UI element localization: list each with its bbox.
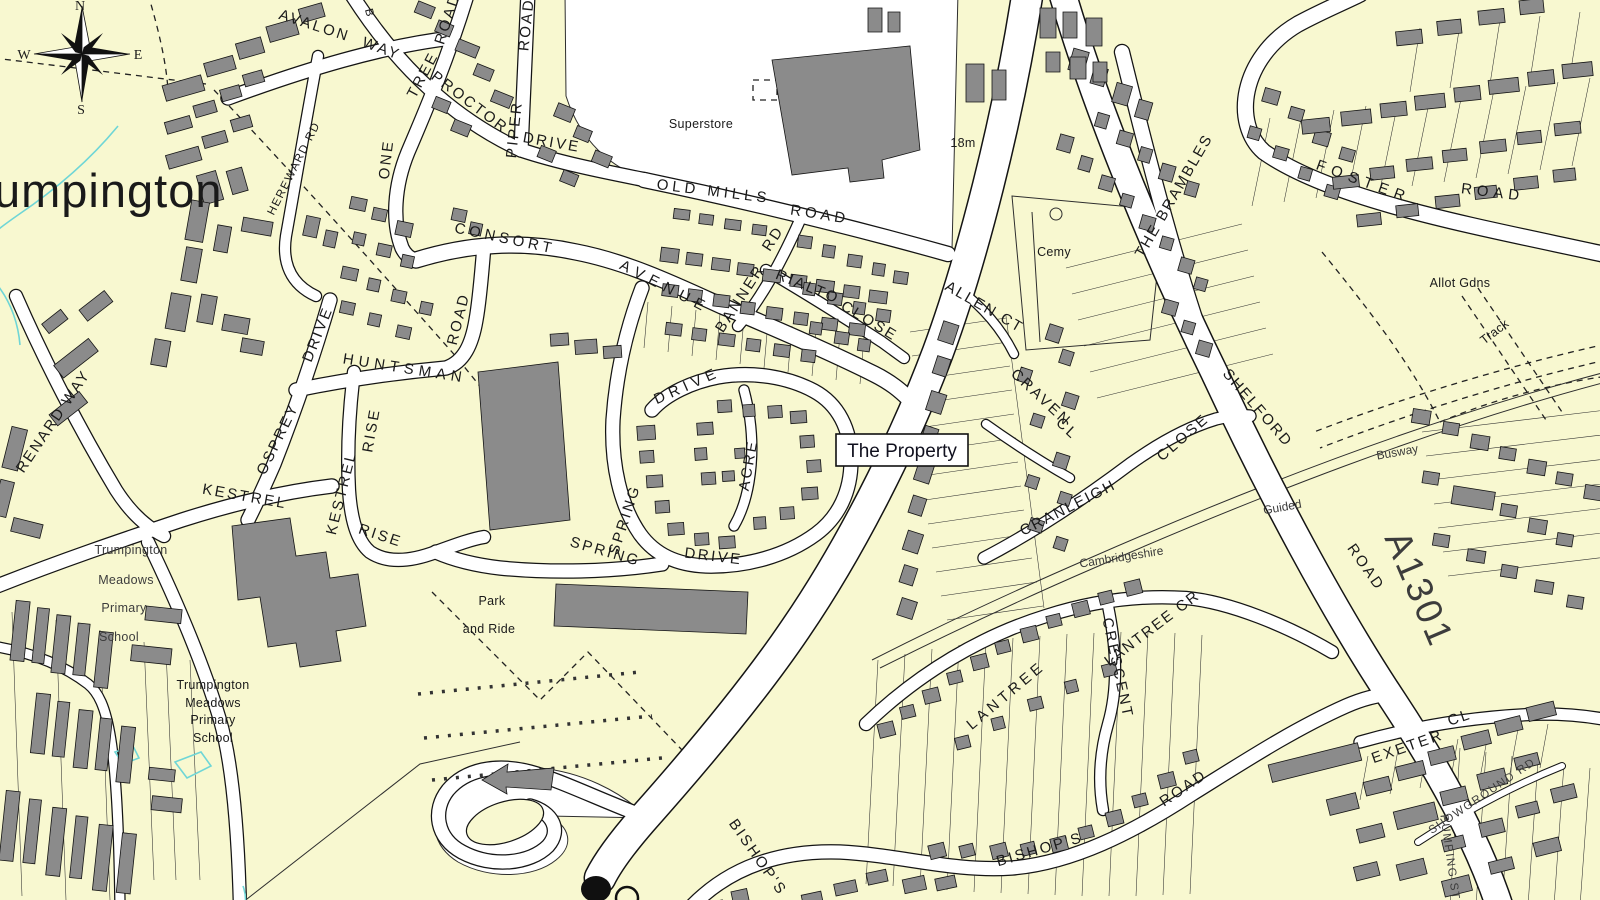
label-park: Park [479,594,506,608]
property-label: The Property [847,441,957,462]
map-canvas: umpington AVALON WAY B ROAD TREE ONE PRO… [0,0,1600,900]
school-label-faint-4: School [99,630,139,644]
compass-n: N [75,0,85,14]
school-label-4: School [193,731,233,745]
school-label-1: Trumpington [176,678,249,692]
compass-w: W [17,48,31,63]
property-marker: The Property [836,434,968,466]
label-allotments: Allot Gdns [1430,276,1491,290]
label-superstore: Superstore [669,117,733,131]
school-label-faint-2: Meadows [98,573,154,587]
school-label-3: Primary [190,713,236,727]
compass-e: E [134,48,143,63]
label-spot-height: 18m [950,136,975,150]
compass-s: S [77,103,85,118]
terrace-spring-drive [554,584,748,634]
place-name: umpington [0,164,223,217]
label-cemetery: Cemy [1037,245,1071,259]
large-building-west [478,362,570,530]
school-label-2: Meadows [185,696,241,710]
school-label-faint-1: Trumpington [94,543,167,557]
label-and-ride: and Ride [463,622,515,636]
school-label-faint-3: Primary [101,601,147,615]
